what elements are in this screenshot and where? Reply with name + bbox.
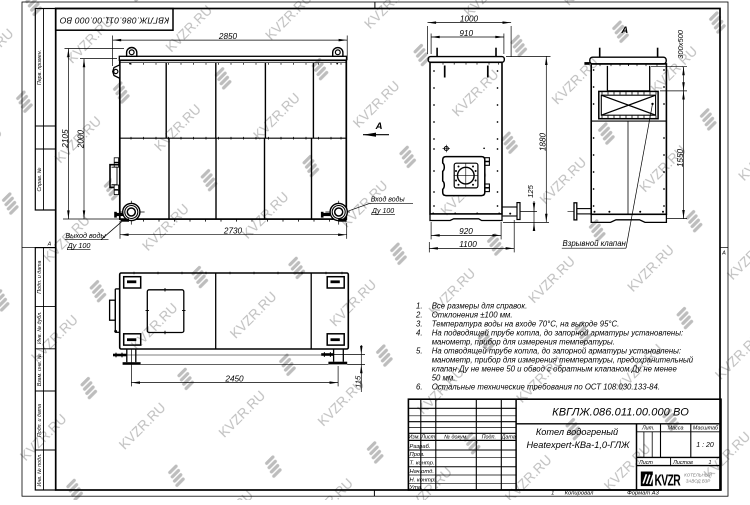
svg-text:манометр, прибор для измерения: манометр, прибор для измерения температу… <box>432 355 694 364</box>
svg-text:1 : 20: 1 : 20 <box>696 442 714 449</box>
svg-text:Нач.отд.: Нач.отд. <box>410 469 434 475</box>
svg-text:115: 115 <box>354 375 363 388</box>
svg-text:КОТЕЛЬНЫЙ: КОТЕЛЬНЫЙ <box>684 473 712 478</box>
svg-text:1000: 1000 <box>460 14 479 23</box>
svg-text:1: 1 <box>551 491 554 497</box>
svg-text:1880: 1880 <box>539 132 548 151</box>
svg-text:Отклонения ±100 мм.: Отклонения ±100 мм. <box>432 311 513 320</box>
svg-text:Масштаб: Масштаб <box>693 425 719 431</box>
svg-text:Взрывной клапан: Взрывной клапан <box>563 239 627 248</box>
svg-text:Пров.: Пров. <box>410 452 425 458</box>
svg-text:клапан Ду не менее 50 и обвод: клапан Ду не менее 50 и обвод с обратным… <box>432 364 678 373</box>
svg-text:Выход воды: Выход воды <box>65 231 106 240</box>
svg-text:КВГЛЖ.086.011.00.000 ВО: КВГЛЖ.086.011.00.000 ВО <box>59 16 169 26</box>
svg-text:2105: 2105 <box>61 129 70 149</box>
svg-text:Котел водогреный: Котел водогреный <box>536 427 618 437</box>
svg-text:Утв.: Утв. <box>409 485 423 491</box>
svg-text:4.: 4. <box>416 329 423 338</box>
svg-text:На отводящей трубе котла, до з: На отводящей трубе котла, до запорной ар… <box>432 346 681 355</box>
svg-text:А: А <box>375 121 383 132</box>
svg-text:Ду 100: Ду 100 <box>67 241 91 250</box>
svg-text:2450: 2450 <box>224 374 244 383</box>
svg-text:Все размеры для справок.: Все размеры для справок. <box>432 302 528 311</box>
svg-text:Ду 100: Ду 100 <box>371 208 394 215</box>
svg-text:КВГЛЖ.086.011.00.000 ВО: КВГЛЖ.086.011.00.000 ВО <box>552 407 689 419</box>
svg-text:910: 910 <box>459 29 473 38</box>
svg-text:Разраб.: Разраб. <box>410 444 431 450</box>
svg-text:125: 125 <box>526 184 535 197</box>
svg-text:Инв. № подл.: Инв. № подл. <box>37 454 43 487</box>
svg-text:А: А <box>721 251 726 257</box>
svg-text:920: 920 <box>459 227 473 236</box>
svg-text:На подводящей трубе котла, до: На подводящей трубе котла, до запорной а… <box>432 329 683 338</box>
svg-text:ЗАВОД ВЗР: ЗАВОД ВЗР <box>686 479 711 484</box>
svg-text:Температура воды на входе 70°С: Температура воды на входе 70°С, на выход… <box>432 320 620 329</box>
svg-text:Масса: Масса <box>668 425 684 431</box>
svg-text:KVZR: KVZR <box>655 472 681 489</box>
svg-text:Копировал: Копировал <box>565 491 595 497</box>
svg-text:Лист: Лист <box>638 460 653 466</box>
svg-text:№ докум.: № докум. <box>444 435 468 441</box>
svg-text:Вход воды: Вход воды <box>371 195 406 203</box>
svg-text:А: А <box>620 25 628 36</box>
svg-text:Справ. №: Справ. № <box>37 167 43 191</box>
svg-text:Перв. примен.: Перв. примен. <box>37 50 43 85</box>
svg-text:Подп. и дата: Подп. и дата <box>37 404 43 437</box>
svg-text:манометр, прибор для измерения: манометр, прибор для измерения температу… <box>432 337 615 346</box>
svg-text:Остальные технические требован: Остальные технические требования по ОСТ … <box>432 382 660 391</box>
svg-text:1550: 1550 <box>676 148 685 167</box>
svg-text:Изм.: Изм. <box>408 435 420 441</box>
svg-text:2.: 2. <box>415 311 423 320</box>
svg-text:Дата: Дата <box>501 435 516 441</box>
svg-text:Инв. № дубл.: Инв. № дубл. <box>37 311 43 344</box>
svg-text:Подп. и дата: Подп. и дата <box>37 260 43 293</box>
svg-text:Взам. инв. №: Взам. инв. № <box>37 353 43 386</box>
svg-text:50 мм.: 50 мм. <box>432 373 456 382</box>
svg-text:6.: 6. <box>416 382 423 391</box>
svg-text:Листов: Листов <box>672 460 693 466</box>
svg-text:А: А <box>47 242 52 248</box>
svg-text:1: 1 <box>709 460 712 466</box>
svg-text:2850: 2850 <box>218 32 238 41</box>
svg-text:Лит.: Лит. <box>641 425 655 431</box>
svg-text:3.: 3. <box>416 320 423 329</box>
svg-text:Т. контр.: Т. контр. <box>410 461 435 467</box>
svg-text:Лист: Лист <box>420 435 435 441</box>
svg-text:5.: 5. <box>416 346 423 355</box>
svg-text:Heatexpert-КВа-1,0-ГЛЖ: Heatexpert-КВа-1,0-ГЛЖ <box>527 440 631 450</box>
svg-text:Подп.: Подп. <box>482 435 496 441</box>
svg-text:2730: 2730 <box>223 227 243 236</box>
svg-text:1100: 1100 <box>459 240 477 249</box>
svg-text:Формат А3: Формат А3 <box>627 491 659 497</box>
svg-text:2000: 2000 <box>76 129 85 149</box>
svg-text:1.: 1. <box>416 302 423 311</box>
svg-text:Н. контр.: Н. контр. <box>410 477 436 483</box>
svg-text:300х500: 300х500 <box>676 29 685 59</box>
